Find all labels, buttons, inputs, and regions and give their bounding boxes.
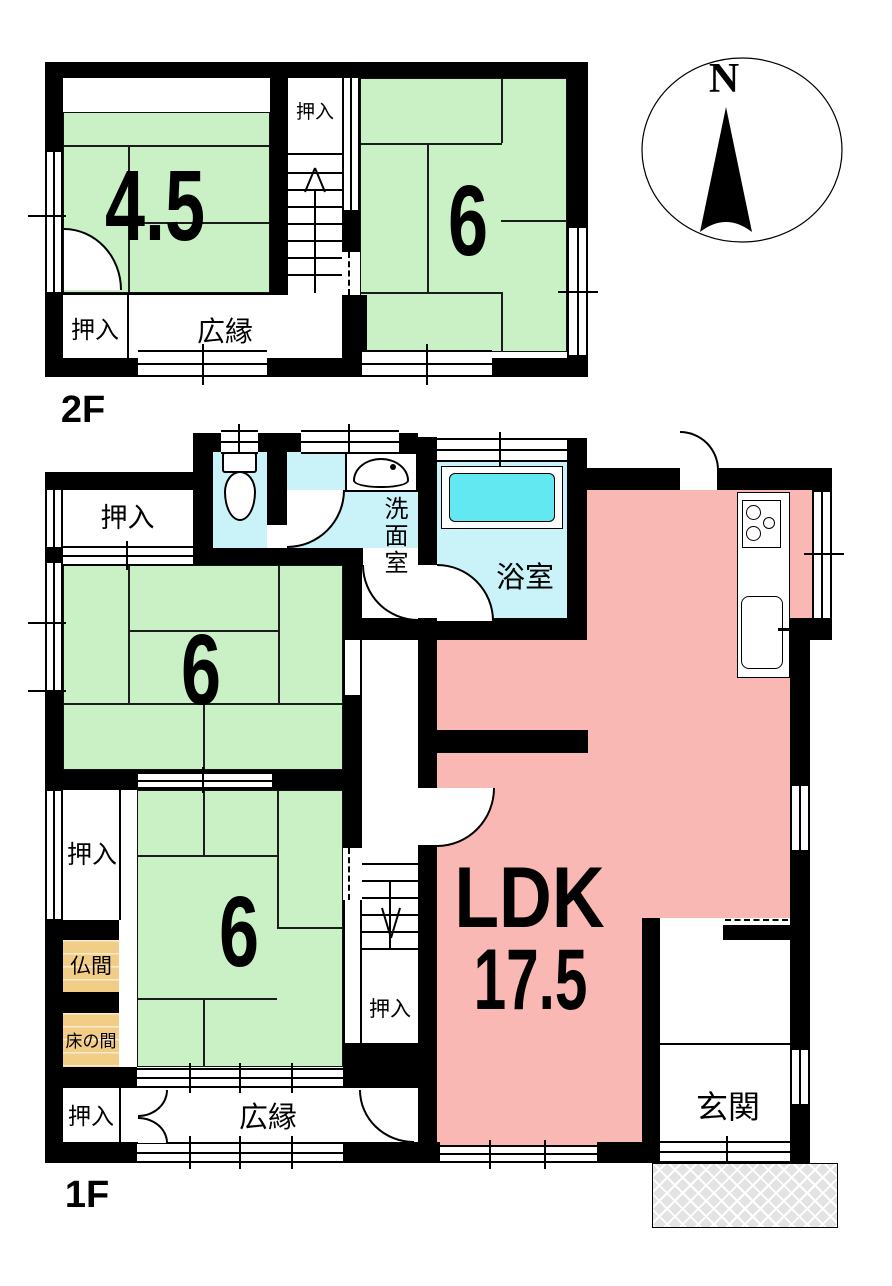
toilet-icon bbox=[222, 452, 257, 473]
room-1f-6-lower-label: 6 bbox=[218, 880, 260, 984]
entrance-sliding-door bbox=[660, 1141, 790, 1163]
door-swing bbox=[138, 1090, 168, 1117]
tick bbox=[239, 1136, 241, 1169]
tick bbox=[499, 432, 501, 468]
wall bbox=[343, 790, 362, 848]
tl-v bbox=[278, 566, 280, 703]
tokonoma-label: 床の間 bbox=[61, 1030, 121, 1052]
wall bbox=[45, 472, 193, 490]
wall bbox=[567, 438, 587, 640]
wall bbox=[343, 695, 362, 770]
tick bbox=[239, 1063, 241, 1093]
door-swing bbox=[680, 431, 719, 470]
wall bbox=[343, 618, 587, 640]
tick bbox=[189, 1136, 191, 1169]
washroom-label: 洗面室 bbox=[377, 490, 409, 582]
tick bbox=[804, 553, 844, 555]
room-1f-6-upper-label: 6 bbox=[180, 618, 222, 722]
entrance-porch bbox=[652, 1163, 838, 1228]
wall bbox=[418, 845, 437, 1147]
stove-burner-icon bbox=[746, 526, 761, 541]
opening-dashed bbox=[348, 848, 350, 900]
window bbox=[812, 492, 832, 618]
wall bbox=[723, 925, 790, 940]
wall bbox=[597, 1142, 660, 1163]
sink-faucet-icon bbox=[390, 464, 396, 470]
entrance-label: 玄関 bbox=[678, 1085, 778, 1129]
window bbox=[45, 563, 63, 691]
ldk bbox=[588, 730, 790, 753]
thin-h bbox=[660, 1043, 790, 1045]
wall bbox=[717, 468, 812, 490]
shape bbox=[379, 906, 403, 940]
floor-1f-tag: 1F bbox=[52, 1172, 122, 1218]
stove-burner-icon bbox=[746, 505, 761, 520]
veranda-1f-label: 広縁 bbox=[218, 1098, 318, 1138]
tick bbox=[28, 622, 66, 624]
wall bbox=[418, 730, 437, 788]
bathtub-icon bbox=[449, 473, 555, 522]
wall bbox=[642, 918, 660, 1163]
wall bbox=[790, 618, 832, 640]
tick bbox=[202, 767, 204, 793]
bathroom-label: 浴室 bbox=[480, 560, 570, 596]
floor-plan: 押入 押入 広縁 4.5 6 2F N bbox=[0, 0, 892, 1286]
tick bbox=[489, 1140, 491, 1169]
shape bbox=[382, 908, 400, 938]
tick bbox=[291, 1063, 293, 1093]
sliding-door bbox=[63, 546, 193, 566]
wall bbox=[63, 992, 119, 1013]
window bbox=[45, 791, 63, 919]
floor-1f-plan: 押入 洗面室 浴室 6 押入 6 仏間 床の間 押入 押入 広縁 LDK 17.… bbox=[0, 0, 892, 1286]
closet-stairs-label: 押入 bbox=[362, 992, 418, 1026]
wall bbox=[267, 433, 287, 525]
wall bbox=[45, 1067, 137, 1088]
wall bbox=[193, 548, 363, 565]
door-swing bbox=[138, 1117, 168, 1143]
door-swing bbox=[359, 1090, 414, 1143]
tick bbox=[126, 541, 128, 570]
tl-v bbox=[128, 566, 130, 703]
wall bbox=[418, 640, 437, 730]
tl-h bbox=[277, 927, 343, 929]
tl-h bbox=[138, 998, 277, 1000]
window bbox=[437, 438, 567, 462]
wall bbox=[343, 548, 362, 640]
window bbox=[790, 1050, 810, 1104]
thin-v bbox=[360, 640, 362, 695]
wall bbox=[437, 730, 588, 753]
wall bbox=[343, 1142, 440, 1163]
butsuma-label: 仏間 bbox=[64, 954, 118, 978]
wall bbox=[45, 1142, 137, 1163]
ldk-label: LDK bbox=[459, 862, 599, 934]
tick bbox=[291, 1136, 293, 1169]
sliding-door bbox=[138, 772, 272, 789]
stove-burner-icon bbox=[763, 517, 775, 529]
wall bbox=[418, 437, 437, 565]
tl-v bbox=[277, 791, 279, 927]
closet-1f-bottom-label: 押入 bbox=[63, 1098, 119, 1134]
tick bbox=[28, 690, 66, 692]
tick bbox=[544, 1140, 546, 1169]
opening-dashed bbox=[725, 919, 788, 921]
wall bbox=[193, 433, 213, 565]
closet-1f-left-label: 押入 bbox=[63, 835, 121, 875]
stairs-down-arrow-icon bbox=[379, 906, 403, 940]
tick bbox=[189, 1063, 191, 1093]
thin-h bbox=[362, 863, 418, 865]
kitchen-faucet-icon bbox=[778, 628, 794, 631]
window bbox=[440, 1145, 597, 1163]
thin-v bbox=[343, 900, 345, 1043]
tl-v bbox=[203, 791, 205, 855]
thin-v bbox=[119, 1088, 121, 1142]
window bbox=[301, 430, 399, 454]
window bbox=[790, 786, 810, 850]
tl-v bbox=[203, 998, 205, 1067]
kitchen-sink-icon bbox=[741, 596, 783, 669]
wall bbox=[587, 468, 680, 490]
ldk-area-label: 17.5 bbox=[474, 945, 586, 1015]
wall bbox=[63, 920, 119, 940]
thin-v bbox=[343, 640, 345, 695]
tl-h bbox=[138, 855, 277, 857]
window bbox=[45, 490, 63, 547]
closet-1f-top-label: 押入 bbox=[85, 498, 170, 538]
